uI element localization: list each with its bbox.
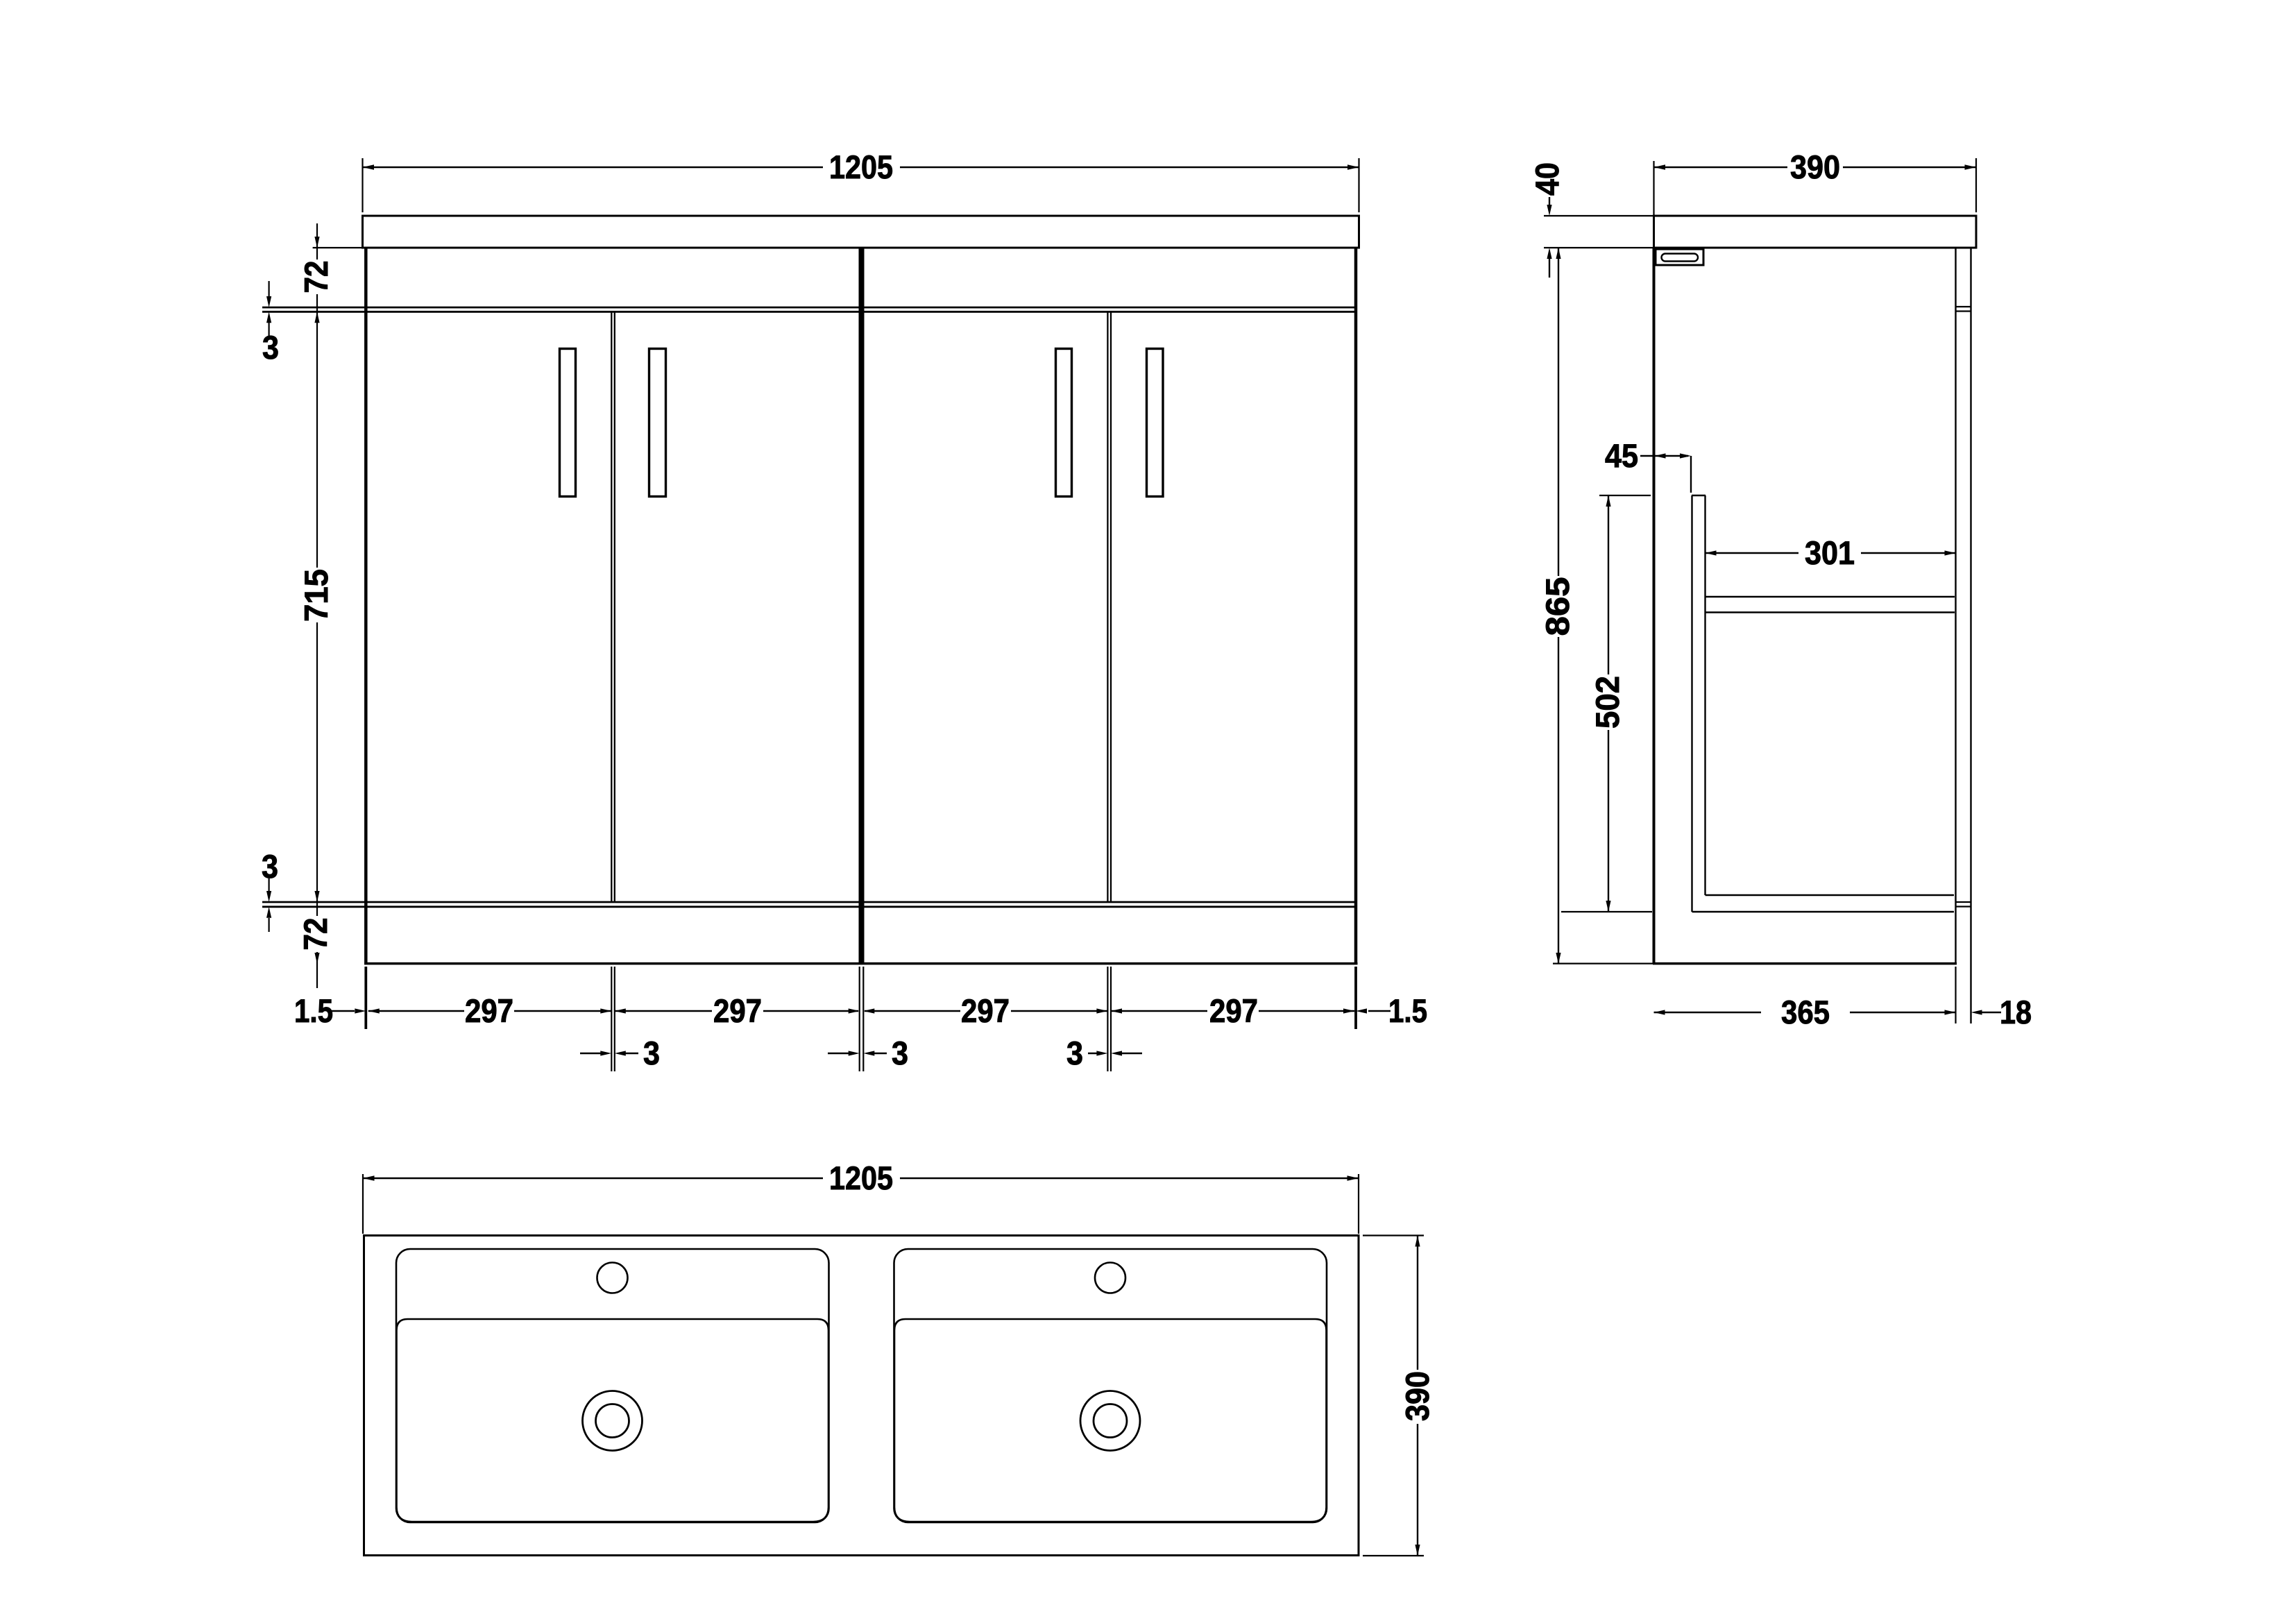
- svg-text:3: 3: [262, 848, 278, 885]
- svg-text:297: 297: [1209, 992, 1258, 1029]
- svg-text:40: 40: [1529, 162, 1565, 196]
- svg-text:297: 297: [465, 992, 513, 1029]
- svg-text:3: 3: [1066, 1035, 1083, 1071]
- svg-text:297: 297: [713, 992, 762, 1029]
- svg-text:297: 297: [961, 992, 1010, 1029]
- svg-text:715: 715: [298, 569, 334, 622]
- svg-text:1205: 1205: [829, 148, 893, 185]
- svg-text:3: 3: [262, 329, 279, 366]
- svg-text:1205: 1205: [829, 1159, 893, 1196]
- svg-text:390: 390: [1399, 1371, 1436, 1421]
- svg-text:45: 45: [1605, 437, 1638, 474]
- svg-text:301: 301: [1805, 534, 1855, 571]
- svg-text:1.5: 1.5: [1388, 992, 1427, 1029]
- svg-text:18: 18: [2000, 994, 2032, 1030]
- svg-text:3: 3: [643, 1035, 660, 1071]
- svg-text:865: 865: [1539, 577, 1576, 636]
- svg-text:365: 365: [1781, 994, 1830, 1030]
- svg-text:1.5: 1.5: [294, 992, 333, 1029]
- svg-text:72: 72: [298, 261, 334, 294]
- svg-text:390: 390: [1790, 148, 1840, 185]
- svg-text:3: 3: [892, 1035, 908, 1071]
- svg-text:72: 72: [297, 918, 334, 951]
- svg-text:502: 502: [1589, 676, 1626, 729]
